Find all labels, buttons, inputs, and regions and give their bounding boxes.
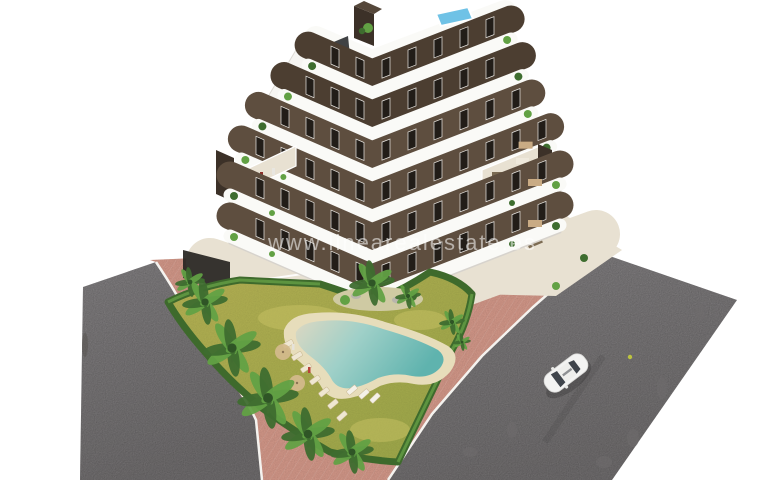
road-stain (82, 333, 88, 357)
balcony-plant (514, 73, 522, 81)
person (292, 344, 295, 350)
balcony-plant (552, 222, 560, 230)
balcony-plant (552, 181, 560, 189)
window (460, 109, 468, 130)
window (460, 150, 468, 171)
roof-plant (359, 28, 365, 34)
window (408, 252, 416, 273)
balcony-plant (509, 200, 515, 206)
window (434, 201, 442, 222)
balcony-plant (269, 210, 275, 216)
balcony-plant (241, 156, 249, 164)
window (281, 188, 289, 209)
window (538, 119, 546, 140)
balcony-plant (284, 93, 292, 101)
window (331, 46, 339, 67)
window (356, 139, 364, 160)
window (408, 129, 416, 150)
balcony-plant (280, 174, 286, 180)
palm-crown (201, 298, 208, 305)
window (408, 211, 416, 232)
window (538, 160, 546, 181)
balcony-plant (524, 110, 532, 118)
window (382, 98, 390, 119)
window (281, 106, 289, 127)
real-estate-render: www.linearealestate.es (0, 0, 757, 480)
window (306, 117, 314, 138)
window (434, 160, 442, 181)
window (460, 68, 468, 89)
window (256, 218, 264, 239)
balcony-plant (308, 62, 316, 70)
window (486, 58, 494, 79)
window (356, 98, 364, 119)
architectural-render: www.linearealestate.es (0, 0, 757, 480)
palm-crown (406, 294, 410, 298)
parasol-pole (282, 351, 284, 353)
palm-crown (368, 279, 375, 286)
window (486, 17, 494, 38)
window (356, 57, 364, 78)
palm-crown (188, 280, 193, 285)
balcony-plant (230, 192, 238, 200)
palm-crown (450, 320, 454, 324)
window (306, 158, 314, 179)
palm-crown (348, 448, 355, 455)
window (331, 169, 339, 190)
road-speck (628, 355, 632, 359)
window (382, 180, 390, 201)
palm-crown (461, 341, 464, 344)
balcony-plant (258, 122, 266, 130)
window (306, 76, 314, 97)
window (382, 57, 390, 78)
balcony-furniture (519, 142, 533, 149)
balcony-plant (230, 233, 238, 241)
balcony-plant (503, 36, 511, 44)
person (272, 168, 275, 175)
balcony-furniture (528, 179, 542, 186)
window (460, 27, 468, 48)
window (538, 201, 546, 222)
window (486, 140, 494, 161)
window (434, 119, 442, 140)
window (434, 78, 442, 99)
window (486, 181, 494, 202)
window (356, 180, 364, 201)
palm-crown (227, 343, 236, 352)
window (306, 199, 314, 220)
watermark: www.linearealestate.es (267, 230, 537, 255)
window (512, 89, 520, 110)
window (331, 87, 339, 108)
window (256, 177, 264, 198)
palm-crown (263, 393, 273, 403)
window (408, 88, 416, 109)
window (460, 191, 468, 212)
window (434, 37, 442, 58)
window (512, 171, 520, 192)
window (331, 210, 339, 231)
balcony-furniture (528, 220, 542, 227)
parasol-pole (296, 382, 298, 384)
person (308, 367, 311, 373)
window (486, 99, 494, 120)
palm-crown (304, 430, 313, 439)
window (408, 170, 416, 191)
window (331, 128, 339, 149)
window (408, 47, 416, 68)
window (382, 139, 390, 160)
window (256, 136, 264, 157)
